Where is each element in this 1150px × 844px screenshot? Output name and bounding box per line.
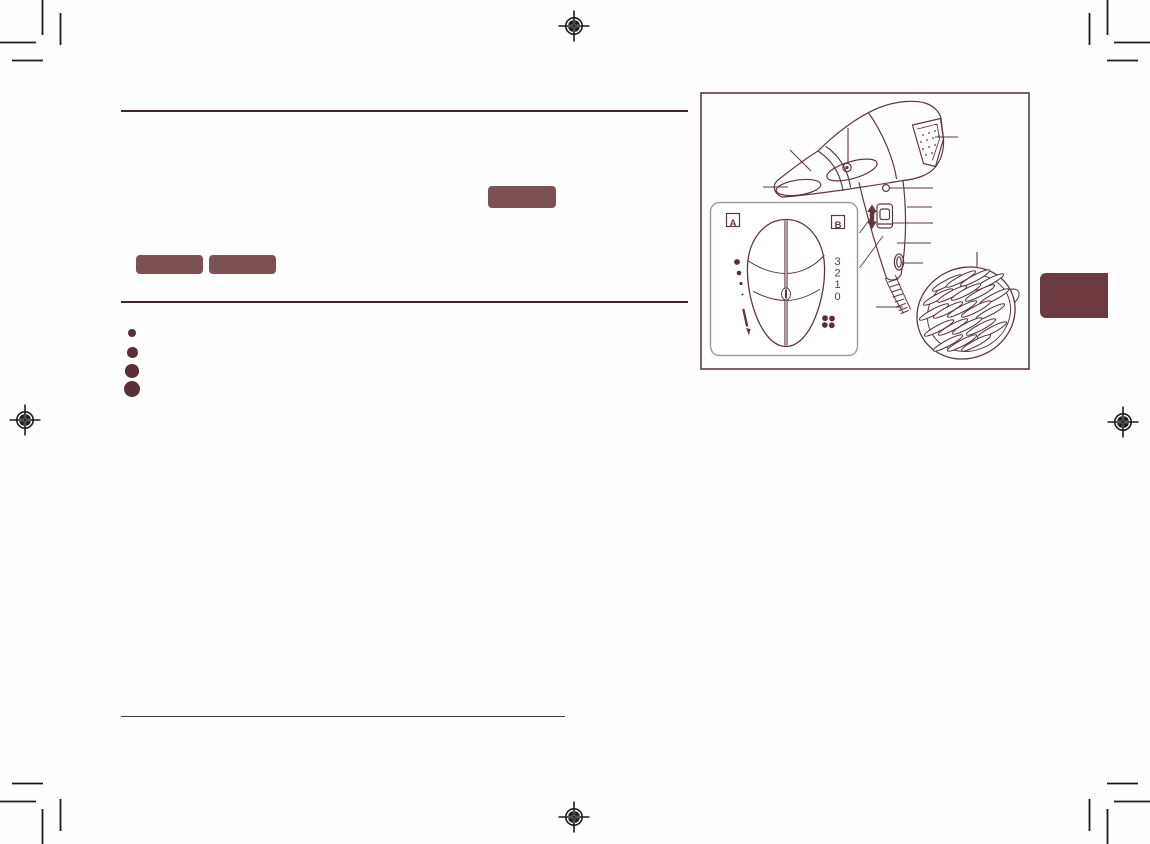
parts-diagram: A B 3 2 1 0 [700,92,1030,370]
registration-target-icon [1108,407,1139,438]
diffuser-attachment [901,251,1030,370]
up-down-arrow-icon [867,205,877,230]
crop-marks-bottom-right [1090,784,1150,844]
switch-position-1: 1 [834,279,840,291]
redacted-inline-badge [488,186,556,208]
crop-marks-bottom-left [0,784,61,844]
crop-marks-top-left [0,0,61,61]
switch-position-0: 0 [834,291,840,303]
handle-knob [883,185,890,192]
bullet-dot [127,347,138,358]
dryer-handle [859,181,905,281]
switch-position-3: 3 [834,256,840,268]
section-rule-bottom [121,301,688,303]
registration-target-icon [559,11,590,42]
bullet-dot [124,381,140,397]
redacted-step-badge [209,255,276,274]
redacted-step-badge [136,255,203,274]
section-rule-top [121,110,688,112]
footnote-rule [121,716,565,717]
registration-target-icon [559,802,590,833]
power-cord [886,276,911,314]
switch-inset-panel: A B 3 2 1 0 [711,203,858,356]
bullet-dot [125,364,139,378]
bullet-dot [128,329,136,337]
registration-target-icon [10,405,41,436]
view-b-label: B [835,220,842,231]
switch-position-2: 2 [834,268,840,280]
crop-marks-top-right [1090,0,1150,61]
manual-page: A B 3 2 1 0 [0,0,1150,844]
view-a-label: A [730,218,737,229]
control-panel-oval [825,155,880,186]
air-inlet-grille [913,119,944,167]
chapter-side-tab [1040,273,1108,318]
